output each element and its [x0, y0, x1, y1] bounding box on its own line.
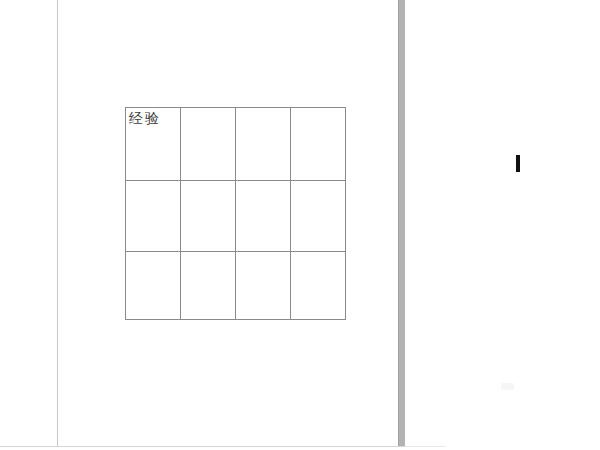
page-left-edge	[57, 0, 58, 447]
table-cell[interactable]	[236, 181, 291, 252]
table-cell[interactable]	[181, 252, 236, 320]
page-bottom-edge-faint	[405, 446, 445, 447]
text-cursor-icon	[516, 155, 520, 172]
table-cell[interactable]	[236, 252, 291, 320]
table-cell[interactable]	[126, 181, 181, 252]
table-cell[interactable]	[181, 181, 236, 252]
document-table: 经验	[125, 107, 346, 320]
table-cell[interactable]	[291, 108, 346, 181]
table-cell[interactable]	[236, 108, 291, 181]
table-cell[interactable]	[126, 252, 181, 320]
table-cell[interactable]: 经验	[126, 108, 181, 181]
document-page-canvas: 经验	[0, 0, 600, 450]
table-cell[interactable]	[291, 181, 346, 252]
page-bottom-edge	[0, 446, 405, 447]
faint-smudge-artifact	[501, 383, 514, 390]
page-right-shadow-bar	[398, 0, 405, 446]
table-cell[interactable]	[181, 108, 236, 181]
table-cell[interactable]	[291, 252, 346, 320]
